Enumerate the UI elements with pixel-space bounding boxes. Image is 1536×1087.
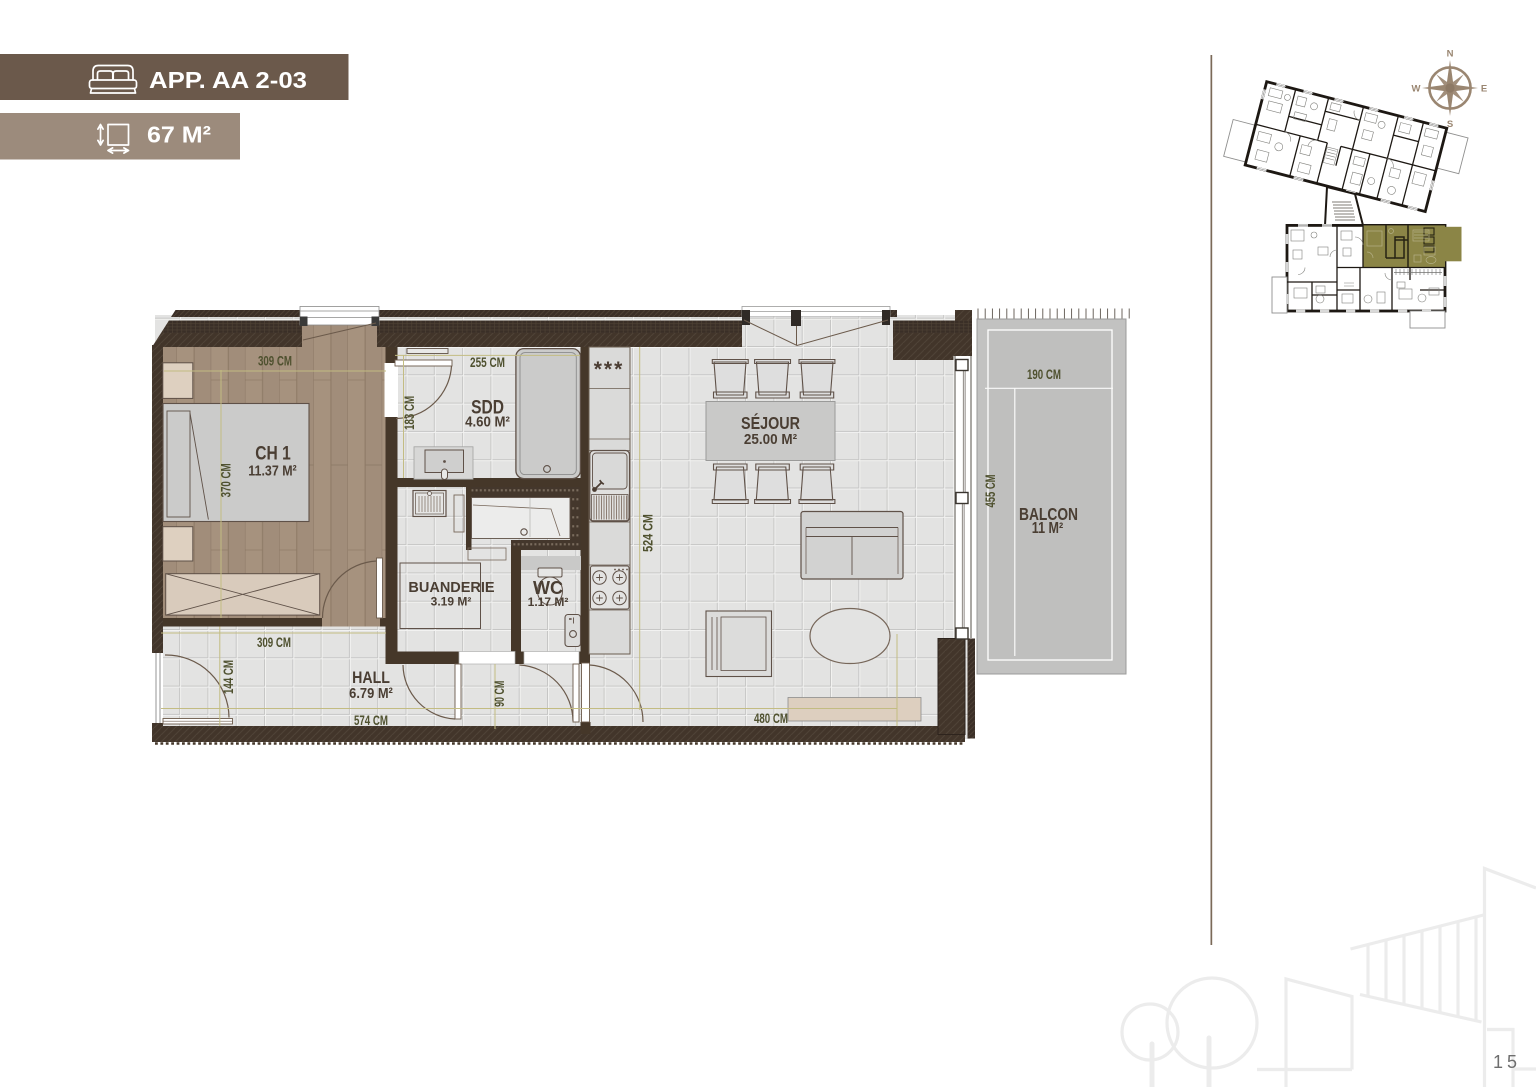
svg-text:190 CM: 190 CM [1027,368,1061,383]
svg-text:183 CM: 183 CM [403,396,418,430]
svg-text:524 CM: 524 CM [640,514,655,552]
svg-text:90 CM: 90 CM [493,681,507,707]
svg-text:N: N [1447,49,1454,60]
svg-text:4.60 M²: 4.60 M² [465,413,510,430]
svg-text:3.19 M²: 3.19 M² [431,595,472,609]
svg-text:144 CM: 144 CM [222,660,237,694]
svg-text:370 CM: 370 CM [219,463,234,497]
svg-text:***: *** [594,358,625,381]
svg-text:S: S [1447,119,1453,130]
svg-text:455 CM: 455 CM [983,474,998,507]
svg-text:11 M²: 11 M² [1032,519,1064,537]
svg-text:480 CM: 480 CM [754,712,788,727]
svg-text:W: W [1412,84,1421,95]
svg-text:E: E [1481,84,1487,95]
svg-text:15: 15 [1493,1052,1521,1072]
svg-text:67 M²: 67 M² [147,122,211,148]
svg-text:APP. AA 2-03: APP. AA 2-03 [149,67,307,93]
svg-text:6.79 M²: 6.79 M² [349,684,393,701]
svg-text:255 CM: 255 CM [470,354,505,370]
svg-text:309 CM: 309 CM [258,354,292,369]
svg-text:CH 1: CH 1 [255,442,291,464]
svg-text:11.37 M²: 11.37 M² [248,462,297,478]
svg-text:25.00 M²: 25.00 M² [744,431,798,448]
svg-text:1.17 M²: 1.17 M² [528,595,569,609]
svg-text:574 CM: 574 CM [354,714,388,729]
svg-text:309 CM: 309 CM [257,636,291,651]
